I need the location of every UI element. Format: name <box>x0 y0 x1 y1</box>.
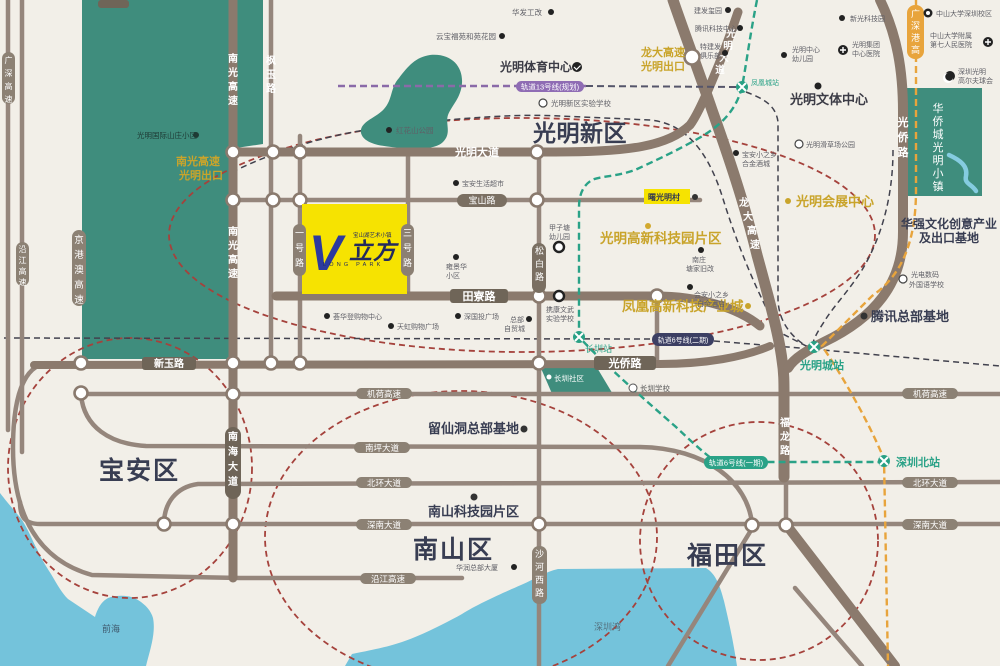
svg-text:深国投广场: 深国投广场 <box>464 312 499 321</box>
svg-text:雍景华: 雍景华 <box>446 262 467 271</box>
svg-text:华润总部大厦: 华润总部大厦 <box>456 563 498 572</box>
svg-text:光明大道: 光明大道 <box>454 145 499 159</box>
svg-text:南坪大道: 南坪大道 <box>365 443 400 453</box>
svg-text:幼儿园: 幼儿园 <box>792 54 813 63</box>
svg-text:留仙洞总部基地: 留仙洞总部基地 <box>428 421 519 436</box>
svg-text:红花山公园: 红花山公园 <box>396 125 434 135</box>
svg-text:光明高新科技园片区: 光明高新科技园片区 <box>599 230 722 246</box>
svg-text:光明出口: 光明出口 <box>640 59 685 73</box>
svg-text:自贸城: 自贸城 <box>504 324 525 333</box>
svg-text:建发玺园: 建发玺园 <box>694 6 722 15</box>
svg-text:塘家旧改: 塘家旧改 <box>686 264 714 273</box>
svg-text:沿江高速: 沿江高速 <box>371 574 406 584</box>
svg-text:V: V <box>309 225 346 281</box>
svg-text:俱乐部: 俱乐部 <box>700 51 721 60</box>
svg-text:凤凰高新科技产业城: 凤凰高新科技产业城 <box>622 298 744 314</box>
svg-text:光明新区实验学校: 光明新区实验学校 <box>551 98 611 108</box>
svg-text:宝山路: 宝山路 <box>468 195 495 206</box>
svg-text:光明城站: 光明城站 <box>799 358 844 372</box>
svg-text:白金酒店: 白金酒店 <box>697 299 725 308</box>
svg-text:云宝福苑和苑花园: 云宝福苑和苑花园 <box>436 31 496 41</box>
svg-text:华发工改: 华发工改 <box>512 7 542 17</box>
svg-text:前海: 前海 <box>102 623 120 634</box>
svg-text:南山科技园片区: 南山科技园片区 <box>428 504 519 519</box>
svg-text:总部: 总部 <box>510 315 524 324</box>
svg-text:光明滑草场公园: 光明滑草场公园 <box>806 140 855 149</box>
svg-text:枫玉路: 枫玉路 <box>266 54 277 95</box>
svg-text:凤凰城站: 凤凰城站 <box>751 78 779 87</box>
svg-text:特建发: 特建发 <box>700 42 721 51</box>
svg-text:中山大学附属: 中山大学附属 <box>930 31 972 40</box>
svg-text:合金酒城: 合金酒城 <box>742 159 770 168</box>
svg-text:道: 道 <box>715 64 725 76</box>
svg-text:腾讯总部基地: 腾讯总部基地 <box>870 309 949 324</box>
svg-text:机荷高速: 机荷高速 <box>367 389 402 399</box>
svg-text:深南大道: 深南大道 <box>913 520 948 530</box>
svg-text:光明体育中心: 光明体育中心 <box>499 59 572 74</box>
svg-text:田寮路: 田寮路 <box>463 289 497 303</box>
svg-text:长圳社区: 长圳社区 <box>554 373 584 383</box>
svg-text:第七人民医院: 第七人民医院 <box>930 40 972 49</box>
svg-text:小区: 小区 <box>446 271 460 280</box>
svg-text:中山大学深圳校区: 中山大学深圳校区 <box>936 9 992 18</box>
svg-text:荟华登购物中心: 荟华登购物中心 <box>333 312 382 321</box>
svg-text:外国语学校: 外国语学校 <box>909 280 944 289</box>
svg-text:及出口基地: 及出口基地 <box>919 230 979 245</box>
svg-text:光明文体中心: 光明文体中心 <box>789 92 868 107</box>
svg-text:会安小之乡: 会安小之乡 <box>694 290 729 299</box>
svg-text:深南大道: 深南大道 <box>367 520 402 530</box>
svg-text:福田区: 福田区 <box>686 542 768 570</box>
svg-text:北环大道: 北环大道 <box>367 478 402 488</box>
svg-text:长圳站: 长圳站 <box>585 343 612 354</box>
svg-text:北环大道: 北环大道 <box>913 478 948 488</box>
svg-text:宝安区: 宝安区 <box>99 456 180 485</box>
svg-text:轨道6号线(二期): 轨道6号线(二期) <box>658 336 709 345</box>
svg-text:宝安生活超市: 宝安生活超市 <box>462 179 504 188</box>
svg-text:光侨路: 光侨路 <box>897 115 910 159</box>
svg-text:幼儿园: 幼儿园 <box>549 232 570 241</box>
svg-text:三号路: 三号路 <box>403 228 412 268</box>
svg-text:轨道13号线(规划): 轨道13号线(规划) <box>521 82 580 92</box>
svg-text:LONG PARK: LONG PARK <box>323 262 383 268</box>
svg-text:光明会展中心: 光明会展中心 <box>795 194 874 209</box>
svg-text:光明新区: 光明新区 <box>532 120 627 146</box>
svg-text:实验学校: 实验学校 <box>546 314 574 323</box>
svg-text:天虹购物广场: 天虹购物广场 <box>397 322 439 331</box>
svg-text:光明中心: 光明中心 <box>792 45 820 54</box>
svg-text:携康文武: 携康文武 <box>546 305 574 314</box>
svg-text:京港澳高速: 京港澳高速 <box>74 234 84 306</box>
svg-text:新玉路: 新玉路 <box>154 357 185 370</box>
svg-text:曙光明村: 曙光明村 <box>648 192 680 202</box>
svg-text:高: 高 <box>747 224 757 237</box>
svg-text:甲子塘: 甲子塘 <box>549 223 570 232</box>
svg-text:南光高速: 南光高速 <box>176 154 220 168</box>
svg-text:新光科技园: 新光科技园 <box>850 14 885 23</box>
svg-text:南山区: 南山区 <box>413 536 494 564</box>
svg-text:光电数码: 光电数码 <box>911 270 939 279</box>
svg-text:深圳北站: 深圳北站 <box>896 455 940 469</box>
svg-text:一号路: 一号路 <box>295 228 304 268</box>
svg-text:龙: 龙 <box>738 196 749 209</box>
svg-text:华强文化创意产业: 华强文化创意产业 <box>901 216 997 231</box>
svg-text:中心医院: 中心医院 <box>852 49 880 58</box>
svg-text:长圳学校: 长圳学校 <box>640 383 670 393</box>
svg-text:深圳光明: 深圳光明 <box>958 67 986 76</box>
svg-text:大: 大 <box>743 210 753 223</box>
svg-text:龙大高速: 龙大高速 <box>640 45 685 59</box>
svg-text:速: 速 <box>750 238 760 251</box>
svg-text:南庄: 南庄 <box>692 255 706 264</box>
svg-text:深圳湾: 深圳湾 <box>594 621 621 632</box>
svg-text:立方: 立方 <box>349 238 399 264</box>
svg-text:宝安小之乡: 宝安小之乡 <box>742 150 777 159</box>
svg-text:光侨路: 光侨路 <box>608 356 643 370</box>
svg-text:松白路: 松白路 <box>535 245 544 282</box>
svg-text:福龙路: 福龙路 <box>779 416 791 457</box>
svg-text:光明出口: 光明出口 <box>178 168 223 182</box>
svg-text:光明集团: 光明集团 <box>852 40 880 49</box>
svg-text:轨道6号线(一期): 轨道6号线(一期) <box>709 458 764 468</box>
svg-text:光明国际山庄小区: 光明国际山庄小区 <box>137 130 197 140</box>
svg-text:宝山湖艺术小镇: 宝山湖艺术小镇 <box>353 231 392 239</box>
svg-text:华侨城光明小镇: 华侨城光明小镇 <box>933 101 944 193</box>
svg-text:腾讯科技中心: 腾讯科技中心 <box>695 24 737 33</box>
svg-text:高尔夫球会: 高尔夫球会 <box>958 76 993 85</box>
svg-text:机荷高速: 机荷高速 <box>913 389 948 399</box>
